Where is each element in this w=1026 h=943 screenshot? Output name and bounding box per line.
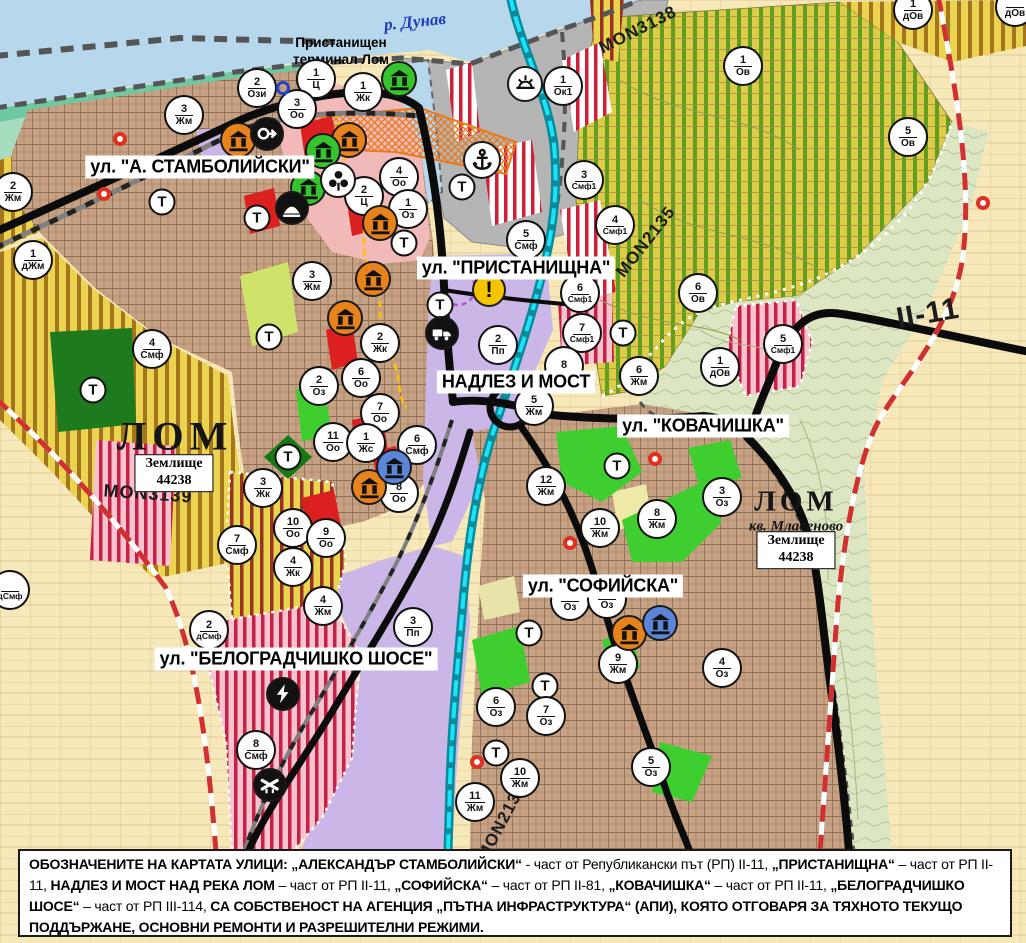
land-box-line2: 44238: [767, 550, 824, 567]
zone-code: Ози: [248, 89, 267, 100]
zone-number: 5: [517, 228, 535, 241]
zone-number: 6: [352, 366, 370, 379]
zone-code: Смф1: [603, 227, 627, 236]
monument-orange-icon: [362, 205, 398, 241]
zone-number: [1, 579, 19, 592]
zone-code: дЖм: [22, 261, 45, 272]
red-dot-icon: [976, 196, 990, 210]
zone-marker-1-дЖм: 1дЖм: [13, 240, 53, 280]
zone-marker-3-Смф1: 3Смф1: [564, 160, 604, 200]
zone-code: Оз: [716, 498, 729, 509]
zone-marker-2-Жм: 2Жм: [0, 172, 33, 212]
t-marker: Т: [80, 377, 107, 404]
zone-marker-11-Жм: 11Жм: [455, 782, 495, 822]
zone-marker-6-Оз: 6Оз: [476, 687, 516, 727]
zone-number: 2: [371, 331, 389, 344]
zone-code: дСмф: [0, 592, 23, 601]
zone-marker-8-Смф: 8Смф: [236, 730, 276, 770]
zone-number: 1: [734, 54, 752, 67]
zone-code: Жк: [373, 344, 387, 355]
zone-code: Ц: [312, 80, 319, 91]
zone-code: Жм: [467, 803, 483, 814]
zone-marker-9-Оо: 9Оо: [306, 518, 346, 558]
monument-blue-icon: [376, 449, 412, 485]
zone-number: 7: [537, 704, 555, 717]
zone-code: Жм: [631, 377, 647, 388]
zone-marker-4-Жк: 4Жк: [273, 547, 313, 587]
zone-number: 4: [284, 555, 302, 568]
zone-number: 6: [408, 433, 426, 446]
zone-code: Оз: [313, 387, 326, 398]
zone-code: Смф: [140, 350, 163, 361]
zone-code: Жс: [359, 444, 374, 455]
zone-code: дОв: [1005, 8, 1025, 19]
t-marker: Т: [427, 292, 454, 319]
zone-code: Ов: [901, 138, 915, 149]
zone-code: Смф1: [771, 346, 795, 355]
zone-number: 8: [648, 507, 666, 520]
zone-marker-6-Оо: 6Оо: [341, 358, 381, 398]
zone-number: 9: [609, 652, 627, 665]
zone-number: 10: [283, 516, 303, 529]
zone-marker-4-Смф: 4Смф: [132, 329, 172, 369]
road-code-label: MON3138: [596, 2, 680, 58]
blue-ring-icon: [276, 81, 290, 95]
red-dot-icon: [563, 536, 577, 550]
zone-number: 1: [399, 197, 417, 210]
red-dot-icon: [648, 452, 662, 466]
zone-marker-2-Пп: 2Пп: [478, 325, 518, 365]
zone-number: 11: [323, 430, 343, 443]
footer-text-segment: – част от РП II-11,: [275, 877, 395, 893]
t-marker: Т: [256, 324, 283, 351]
footer-text-segment: „СОФИЙСКА“: [394, 877, 488, 893]
zone-code: Оо: [392, 494, 406, 505]
zone-marker-3-Пп: 3Пп: [393, 607, 433, 647]
footer-text-segment: - част от Републикански път (РП) II-11,: [522, 856, 772, 872]
zone-number: 3: [254, 476, 272, 489]
footer-text-segment: – част от РП II-81,: [488, 877, 609, 893]
zone-marker-x-дОв: дОв: [995, 0, 1026, 27]
zone-marker-2-дСмф: 2дСмф: [189, 610, 229, 650]
zone-number: 11: [465, 790, 485, 803]
zone-marker-12-Жм: 12Жм: [526, 466, 566, 506]
zone-code: Жм: [5, 193, 21, 204]
zone-marker-7-Смф: 7Смф: [217, 525, 257, 565]
zone-code: дОв: [710, 368, 730, 379]
footer-text-segment: ОБОЗНАЧЕНИТЕ НА КАРТАТА УЛИЦИ: „АЛЕКСАНД…: [29, 856, 522, 872]
zone-number: 3: [713, 485, 731, 498]
zone-number: 4: [314, 594, 332, 607]
zone-marker-6-Жм: 6Жм: [619, 356, 659, 396]
zone-marker-1-Жк: 1Жк: [343, 72, 383, 112]
t-marker: Т: [604, 453, 631, 480]
zone-number: 7: [228, 533, 246, 546]
zone-marker-2-Оз: 2Оз: [299, 366, 339, 406]
zone-code: Оз: [402, 210, 415, 221]
zone-marker-4-Оз: 4Оз: [702, 648, 742, 688]
zone-code: Жм: [649, 520, 665, 531]
zone-number: 3: [175, 103, 193, 116]
land-registry-box: Землище44238: [756, 531, 835, 569]
zone-code: Ц: [360, 197, 367, 208]
street-label: НАДЛЕЗ И МОСТ: [437, 371, 595, 394]
zone-number: 3: [288, 97, 306, 110]
trefoil-icon: [320, 162, 356, 198]
land-registry-box: Землище44238: [134, 454, 213, 492]
sun-icon: [507, 66, 543, 102]
footer-text-segment: „КОВАЧИШКА“: [608, 877, 710, 893]
zone-code: Оо: [354, 379, 368, 390]
tunnel-icon: [275, 191, 309, 225]
zone-marker-10-Жм: 10Жм: [500, 758, 540, 798]
zone-code: Смф: [405, 446, 428, 457]
zone-marker-5-Ов: 5Ов: [888, 117, 928, 157]
t-marker: Т: [244, 205, 271, 232]
zone-number: 1: [904, 0, 922, 11]
zone-marker-3-Оо: 3Оо: [277, 89, 317, 129]
zone-marker-1-Ов: 1Ов: [723, 46, 763, 86]
zone-marker-x-дСмф: дСмф: [0, 570, 30, 610]
zone-code: Оо: [290, 110, 304, 121]
zone-number: 2: [355, 184, 373, 197]
zone-code: Жм: [304, 282, 320, 293]
street-label: ул. "ПРИСТАНИЩНА": [417, 257, 615, 280]
t-marker: Т: [149, 189, 176, 216]
zone-marker-1-Ок1: 1Ок1: [543, 66, 583, 106]
zone-marker-5-Смф: 5Смф: [506, 220, 546, 260]
zone-number: 1: [354, 80, 372, 93]
zone-number: 4: [606, 214, 624, 227]
zone-number: 5: [899, 125, 917, 138]
zone-number: 5: [642, 755, 660, 768]
zone-number: 6: [630, 364, 648, 377]
zone-marker-10-Жм: 10Жм: [580, 508, 620, 548]
zone-number: 10: [510, 766, 530, 779]
zone-number: 2: [310, 374, 328, 387]
monument-orange-icon: [327, 300, 363, 336]
zone-marker-4-Жм: 4Жм: [303, 586, 343, 626]
footer-text-segment: – част от РП II-11,: [711, 877, 831, 893]
town-label: ЛОМ: [117, 413, 234, 460]
zone-number: [1006, 0, 1024, 8]
zone-marker-3-Оз: 3Оз: [702, 477, 742, 517]
zone-number: 2: [248, 76, 266, 89]
zone-number: 1: [24, 248, 42, 261]
zone-code: Оз: [645, 768, 658, 779]
zone-marker-5-Оз: 5Оз: [631, 747, 671, 787]
zone-number: 7: [573, 322, 591, 335]
zone-number: 3: [404, 615, 422, 628]
land-box-line1: Землище: [767, 533, 824, 550]
zone-code: Оо: [326, 443, 340, 454]
zone-code: Жм: [512, 779, 528, 790]
zone-number: 1: [307, 67, 325, 80]
zone-marker-3-Жм: 3Жм: [292, 261, 332, 301]
zone-code: Жм: [176, 116, 192, 127]
road-code-label: II-11: [894, 292, 962, 336]
t-marker: Т: [516, 620, 543, 647]
zone-number: 10: [590, 516, 610, 529]
zone-code: Оз: [601, 600, 614, 611]
zone-code: Смф1: [568, 295, 592, 304]
zone-marker-2-Жк: 2Жк: [360, 323, 400, 363]
footer-text-segment: НАДЛЕЗ И МОСТ НАД РЕКА ЛОМ: [51, 877, 275, 893]
red-dot-icon: [470, 755, 484, 769]
direction-arrow-icon: [250, 117, 284, 151]
zone-code: Оз: [490, 708, 503, 719]
zone-code: дСмф: [196, 632, 221, 641]
zone-number: 9: [317, 526, 335, 539]
zone-code: Жк: [286, 568, 300, 579]
zone-number: 4: [713, 656, 731, 669]
zone-code: дОв: [903, 11, 923, 22]
zone-number: 12: [536, 474, 556, 487]
map-overlay: 2Ози1Ц1Жк3Оо3Жм2Жм1дЖм3Жм4Оо2Ц1Оз1Ок11Ов…: [0, 0, 1026, 943]
zone-marker-4-Смф1: 4Смф1: [595, 205, 635, 245]
zone-number: 8: [247, 738, 265, 751]
t-marker: Т: [275, 444, 302, 471]
zone-code: Смф: [225, 546, 248, 557]
zone-code: Жм: [610, 665, 626, 676]
zone-number: 6: [689, 281, 707, 294]
zone-number: 1: [357, 431, 375, 444]
town-label: ЛОМ: [754, 486, 838, 519]
zone-marker-1-дОв: 1дОв: [893, 0, 933, 30]
zone-code: Ов: [691, 294, 705, 305]
zone-marker-6-Ов: 6Ов: [678, 273, 718, 313]
zone-code: Пп: [406, 628, 419, 639]
red-dot-icon: [113, 132, 127, 146]
zone-code: Жм: [526, 407, 542, 418]
red-dot-icon: [97, 187, 111, 201]
zone-code: Пп: [491, 346, 504, 357]
zone-code: Смф1: [572, 182, 596, 191]
zone-number: 4: [143, 337, 161, 350]
zone-marker-2-Ози: 2Ози: [237, 68, 277, 108]
truck-icon: [425, 316, 459, 350]
rail-crossing-icon: [253, 768, 287, 802]
zone-code: Жм: [315, 607, 331, 618]
zone-code: Оо: [319, 539, 333, 550]
land-box-line1: Землище: [145, 456, 202, 473]
zone-code: Оо: [392, 178, 406, 189]
zone-marker-7-Оз: 7Оз: [526, 696, 566, 736]
zone-code: Жм: [538, 487, 554, 498]
zone-code: Жм: [592, 529, 608, 540]
zone-number: 3: [575, 169, 593, 182]
zone-number: 7: [371, 401, 389, 414]
zone-marker-1-дОв: 1дОв: [700, 347, 740, 387]
zone-number: 3: [303, 269, 321, 282]
river-name-label: р. Дунав: [383, 9, 447, 35]
zone-code: Оз: [564, 602, 577, 613]
zone-marker-3-Жк: 3Жк: [243, 468, 283, 508]
zone-number: 6: [487, 695, 505, 708]
zone-number: 6: [571, 282, 589, 295]
zone-marker-8-Жм: 8Жм: [637, 499, 677, 539]
t-marker: Т: [610, 320, 637, 347]
zone-code: Оо: [373, 414, 387, 425]
zone-code: Оз: [540, 717, 553, 728]
zone-code: Смф: [514, 241, 537, 252]
zone-marker-5-Смф1: 5Смф1: [763, 324, 803, 364]
legend-text-box: ОБОЗНАЧЕНИТЕ НА КАРТАТА УЛИЦИ: „АЛЕКСАНД…: [18, 849, 1012, 937]
zone-number: 2: [489, 333, 507, 346]
monument-green-icon: [381, 61, 417, 97]
land-box-line2: 44238: [145, 473, 202, 490]
zone-number: 4: [390, 165, 408, 178]
street-label: ул. "КОВАЧИШКА": [617, 415, 789, 438]
monument-orange-icon: [355, 261, 391, 297]
anchor-icon: [463, 141, 501, 179]
street-label: ул. "БЕЛОГРАДЧИШКО ШОСЕ": [155, 648, 438, 671]
zone-code: Жк: [356, 93, 370, 104]
zone-code: Оо: [286, 529, 300, 540]
zone-code: Ов: [736, 67, 750, 78]
zone-code: Оз: [716, 669, 729, 680]
zone-number: 5: [774, 333, 792, 346]
monument-blue-icon: [642, 605, 678, 641]
street-label: ул. "А. СТАМБОЛИЙСКИ": [85, 156, 314, 179]
zoning-map-canvas[interactable]: 2Ози1Ц1Жк3Оо3Жм2Жм1дЖм3Жм4Оо2Ц1Оз1Ок11Ов…: [0, 0, 1026, 943]
zone-number: 1: [711, 355, 729, 368]
zone-number: 1: [554, 74, 572, 87]
zone-code: Смф: [244, 751, 267, 762]
zone-number: 5: [525, 394, 543, 407]
zone-code: Жк: [256, 489, 270, 500]
zone-number: 2: [4, 180, 22, 193]
t-marker: Т: [449, 174, 476, 201]
zone-code: Смф1: [570, 335, 594, 344]
zone-code: Ок1: [554, 87, 572, 98]
footer-text-segment: – част от РП III-114,: [79, 898, 210, 914]
lightning-icon: [266, 677, 300, 711]
zone-marker-3-Жм: 3Жм: [164, 95, 204, 135]
zone-number: 2: [200, 619, 218, 632]
street-label: ул. "СОФИЙСКА": [523, 575, 683, 598]
footer-text-segment: „ПРИСТАНИЩНА“: [772, 856, 895, 872]
